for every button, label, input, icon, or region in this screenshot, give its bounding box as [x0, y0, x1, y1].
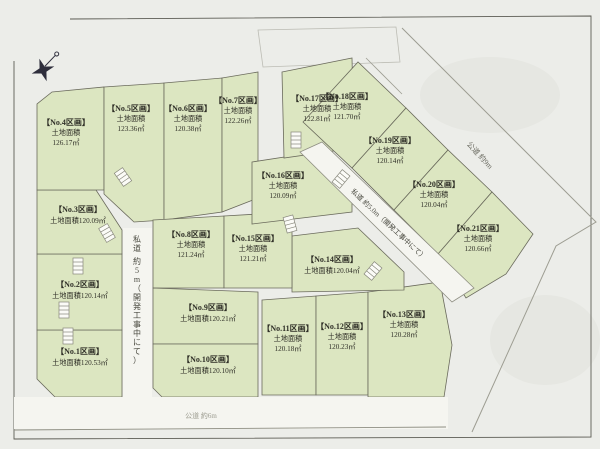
scan-texture-blob [490, 295, 600, 385]
plot-no13 [368, 282, 452, 397]
stairs-icon [63, 328, 73, 344]
public-road-south [14, 397, 448, 429]
scan-texture-blob [420, 57, 560, 133]
stairs-icon [291, 132, 301, 148]
stairs-icon [59, 302, 69, 318]
stairs-icon [73, 258, 83, 274]
plot-map-canvas: 【No.1区画】土地面積120.53㎡【No.2区画】土地面積120.14㎡【N… [0, 0, 600, 449]
land-plot-map: 【No.1区画】土地面積120.53㎡【No.2区画】土地面積120.14㎡【N… [0, 0, 600, 449]
public-road-south-label: 公道 約6m [185, 411, 217, 420]
